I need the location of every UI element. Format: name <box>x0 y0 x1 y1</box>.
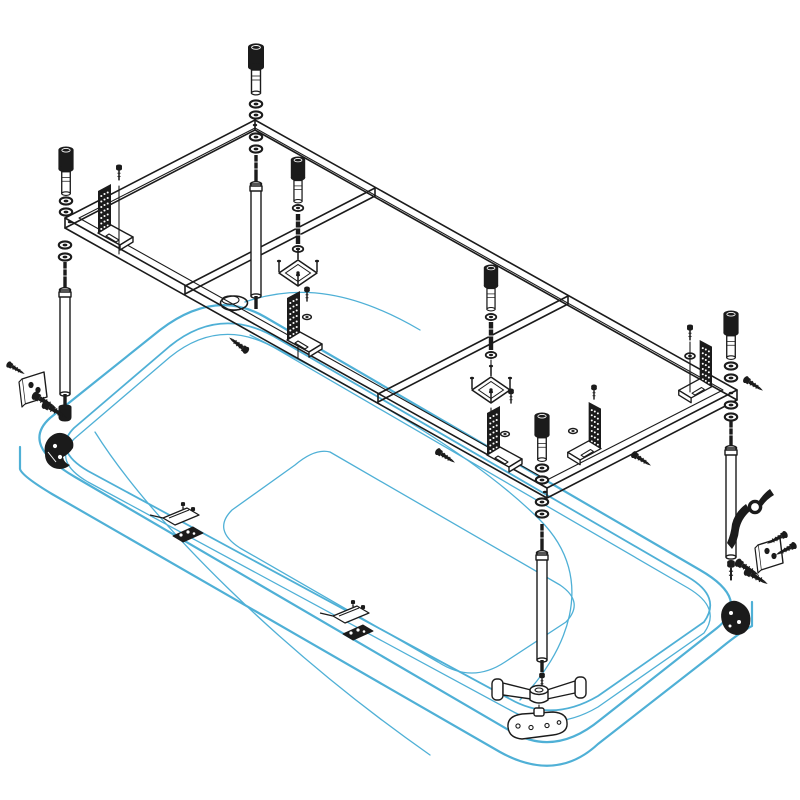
angle-bracket-5 <box>679 324 712 402</box>
tub-basin-opening <box>66 323 711 710</box>
assembly-diagram <box>0 0 800 800</box>
fixing-plate-2 <box>470 365 512 403</box>
adjustable-leg-east <box>725 421 737 580</box>
loose-screw-3 <box>630 450 653 469</box>
diagram-canvas <box>0 0 800 800</box>
support-frame <box>65 120 737 498</box>
bolt-assembly-south <box>534 412 549 517</box>
frame-cross-members <box>185 188 568 402</box>
adjustable-leg-south <box>536 524 548 672</box>
bolt-assembly-north <box>248 43 264 152</box>
frame-inner-edge <box>79 128 723 480</box>
wall-bracket-right <box>733 530 797 588</box>
adjustable-leg-north <box>250 155 262 309</box>
corner-pad-left <box>45 433 74 469</box>
loose-screw-4 <box>742 375 765 394</box>
corner-pad-right <box>721 601 750 635</box>
angle-bracket-1 <box>98 164 133 254</box>
tub-skirt <box>20 447 752 766</box>
tub-wall-curve-rear <box>245 292 420 330</box>
bolt-assembly-west <box>58 146 73 260</box>
frame-corner-holes <box>68 124 733 494</box>
adjustable-leg-west <box>59 262 72 422</box>
angle-bracket-4 <box>568 385 601 465</box>
panel-foot-base <box>508 708 567 739</box>
loose-screw-1 <box>227 334 251 355</box>
bolt-assembly-east <box>723 310 738 420</box>
bathtub <box>20 292 752 765</box>
drain-opening <box>221 296 248 311</box>
fixing-plate-1 <box>277 248 319 286</box>
